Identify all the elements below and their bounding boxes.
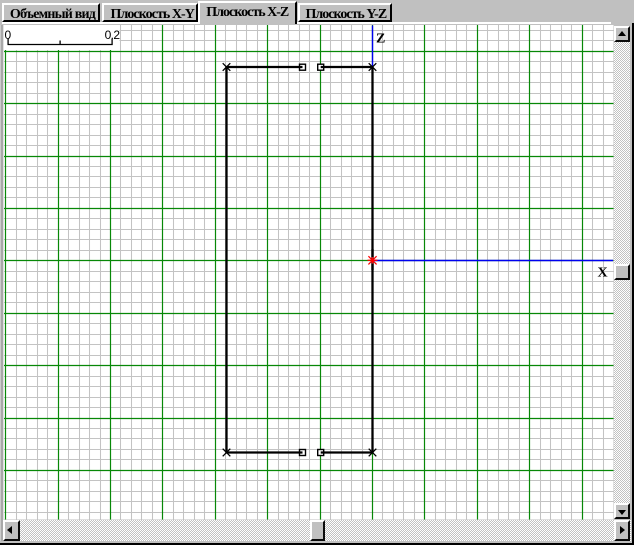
- svg-text:X: X: [598, 266, 608, 281]
- svg-text:Z: Z: [376, 31, 385, 46]
